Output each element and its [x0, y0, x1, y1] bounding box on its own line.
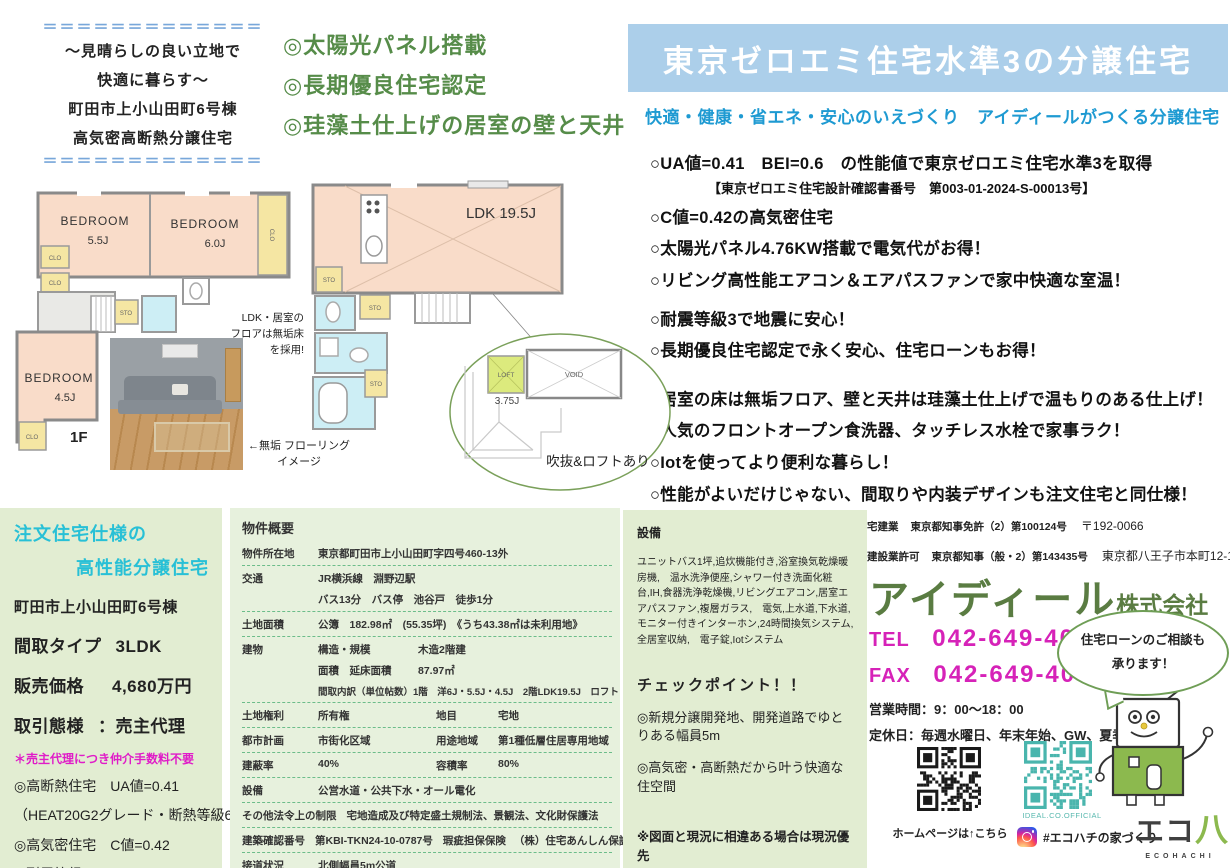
overview-label2: 地目 [436, 708, 498, 723]
ecohachi-logo-en: ECOHACHI [1135, 853, 1225, 860]
plan-note-line: を採用! [224, 343, 304, 359]
overview-label: 建築確認番号 [242, 833, 305, 848]
agency-note: ＊売主代理につき仲介手数料不要 [14, 750, 214, 767]
loft-size: 3.75J [495, 396, 519, 407]
property-overview: 物件概要 物件所在地東京都町田市上小山田町字四号460-13外交通JR横浜線 淵… [230, 508, 620, 868]
bubble-line: 承ります！ [1112, 653, 1175, 677]
catch-block: ＝＝＝＝＝＝＝＝＝＝＝＝＝ ～見晴らしの良い立地で 快適に暮らす～ 町田市上小山… [28, 20, 278, 170]
overview-line: JR横浜線 淵野辺駅 [318, 571, 612, 586]
overview-label2: 瑕疵担保保険 [443, 833, 506, 848]
bedroom2-name: BEDROOM [170, 217, 239, 231]
overview-label2: 用途地域 [436, 733, 498, 748]
overview-value: 所有権 [318, 708, 436, 723]
overview-value: 宅地造成及び特定盛土規制法、景観法、文化財保護法 [347, 808, 603, 823]
license-row-1: 宅建業 東京都知事免許（2）第100124号 〒192-0066 [867, 517, 1144, 534]
checkpoint-item: ◎高気密・高断熱だから叶う快適な住空間 [637, 759, 855, 795]
price-label: 販売価格 [14, 677, 84, 696]
postal-code: 〒192-0066 [1081, 517, 1144, 534]
checkpoint-title: チェックポイント！！ [637, 674, 855, 695]
company-block: 宅建業 東京都知事免許（2）第100124号 〒192-0066 建設業許可 東… [867, 505, 1230, 868]
bedroom3-name: BEDROOM [24, 371, 93, 385]
bedroom2-size: 6.0J [205, 238, 226, 250]
instagram-icon [1017, 827, 1037, 847]
overview-label: 建物 [242, 642, 318, 657]
instagram-dot [1032, 830, 1035, 833]
checkpoint-item: ◎新規分譲開発地、開発道路でゆとりある幅員5m [637, 709, 855, 745]
equipment-body: ユニットバス1坪,追炊機能付き,浴室換気乾燥暖房機, 温水洗浄便座,シャワー付き… [637, 555, 855, 648]
feature-item: ○長期優良住宅認定で永く安心、住宅ローンもお得！ [650, 341, 1230, 362]
plan-note-line: LDK・居室の [224, 311, 304, 327]
spec-list: ◎高断熱住宅 UA値=0.41（HEAT20G2グレード・断熱等級6）◎高気密住… [14, 776, 214, 868]
torihiki-row: 取引態様：売主代理 [14, 712, 214, 737]
catch-line-2: 快適に暮らす～ [28, 66, 278, 95]
fax-label: FAX [869, 665, 911, 687]
highlight-list: ◎太陽光パネル搭載 ◎長期優良住宅認定 ◎珪藻土仕上げの居室の壁と天井 [283, 26, 625, 146]
feature-text: ○リビング高性能エアコン＆エアパスファンで家中快適な室温！ [650, 271, 1230, 292]
overview-row: 設備公営水道・公共下水・オール電化 [242, 778, 612, 803]
overview-value2: 80% [498, 758, 612, 770]
equipment-title: 設備 [637, 524, 855, 541]
overview-lines: 構造・規模木造2階建面積 延床面積87.97㎡間取内訳（単位帖数）1階 洋6J・… [318, 642, 619, 698]
storage-label: STO [369, 306, 382, 312]
catch-line-3: 町田市上小山田町6号棟 [28, 95, 278, 124]
company-name-main: アイディール [869, 578, 1116, 622]
highlight-item: ◎珪藻土仕上げの居室の壁と天井 [283, 106, 625, 146]
overview-value: 市街化区域 [318, 733, 436, 748]
license-row-2: 建設業許可 東京都知事（般・2）第143435号 東京都八王子市本町12-1 [867, 547, 1230, 564]
overview-row: 交通JR横浜線 淵野辺駅バス13分 バス停 池谷戸 徒歩1分 [242, 566, 612, 612]
overview-row: 土地面積公簿 182.98㎡ (55.35坪) 《うち43.38㎡は未利用地》 [242, 612, 612, 637]
homepage-qr-code [917, 747, 981, 811]
storage-label: STO [323, 278, 336, 284]
feature-text: ○性能がよいだけじゃない、間取りや内装デザインも注文住宅と同仕様！ [650, 485, 1230, 506]
overview-value2: 宅地 [498, 708, 612, 723]
license1-label: 宅建業 [867, 519, 899, 534]
ldk-label: LDK 19.5J [466, 205, 536, 222]
instagram-lens [1022, 832, 1032, 842]
overview-label: 土地権利 [242, 708, 318, 723]
feature-item: ○人気のフロントオープン食洗器、タッチレス水栓で家事ラク！ [650, 421, 1230, 442]
overview-label: 交通 [242, 571, 318, 586]
ecohachi-logo: エコ八 ECOHACHI [1135, 803, 1225, 860]
overview-value: 東京都町田市上小山田町字四号460-13外 [318, 546, 612, 561]
equipment-panel: 設備 ユニットバス1坪,追炊機能付き,浴室換気乾燥暖房機, 温水洗浄便座,シャワ… [623, 510, 867, 868]
overview-row: 都市計画市街化区域用途地域 第1種低層住居専用地域 [242, 728, 612, 753]
license1-number: 東京都知事免許（2）第100124号 [911, 519, 1067, 534]
overview-line: 面積 延床面積87.97㎡ [318, 663, 619, 678]
catch-line-1: ～見晴らしの良い立地で [28, 37, 278, 66]
checkpoint-list: ◎新規分譲開発地、開発道路でゆとりある幅員5m◎高気密・高断熱だから叶う快適な住… [637, 709, 855, 796]
overview-value2: 第1種低層住居専用地域 [498, 733, 612, 748]
highlight-item: ◎太陽光パネル搭載 [283, 26, 625, 66]
overview-value: 北側幅員5m公道 [318, 858, 612, 868]
overview-line: 構造・規模木造2階建 [318, 642, 619, 657]
plan-note-line: フロアは無垢床 [224, 327, 304, 343]
overview-row: 建築確認番号第KBI-TKN24-10-0787号瑕疵担保保険 （株）住宅あんし… [242, 828, 612, 853]
photo-caption: ←無垢 フローリング イメージ [247, 439, 351, 471]
catch-line-4: 高気密高断熱分譲住宅 [28, 124, 278, 153]
decoration-equals-top: ＝＝＝＝＝＝＝＝＝＝＝＝＝ [28, 20, 278, 37]
overview-value: 公簿 182.98㎡ (55.35坪) 《うち43.38㎡は未利用地》 [318, 617, 612, 632]
feature-subtext: 【東京ゼロエミ住宅設計確認書番号 第003-01-2024-S-00013号】 [708, 178, 1230, 197]
overview-value: 公営水道・公共下水・オール電化 [318, 783, 612, 798]
feature-item: ○居室の床は無垢フロア、壁と天井は珪藻土仕上げで温もりのある仕上げ！ [650, 390, 1230, 411]
qr1-caption: ホームページは↑こちら [875, 825, 1025, 841]
storage-label: STO [370, 382, 383, 388]
sofa-seat [118, 400, 222, 414]
price-box: 注文住宅仕様の 高性能分譲住宅 町田市上小山田町6号棟 間取タイプ3LDK 販売… [0, 508, 222, 868]
price-box-title1: 注文住宅仕様の [14, 520, 214, 546]
overview-row: 建物構造・規模木造2階建面積 延床面積87.97㎡間取内訳（単位帖数）1階 洋6… [242, 637, 612, 703]
overview-label: 建蔽率 [242, 758, 318, 773]
overview-label: その他法令上の制限 [242, 808, 337, 823]
feature-item: ○太陽光パネル4.76KW搭載で電気代がお得！ [650, 239, 1230, 260]
price-value: 4,680万円 [112, 677, 192, 696]
overview-table: 物件所在地東京都町田市上小山田町字四号460-13外交通JR横浜線 淵野辺駅バス… [242, 541, 612, 868]
feature-item: ○Iotを使ってより便利な暮らし！ [650, 453, 1230, 474]
logo-hachi: 八 [1195, 811, 1228, 848]
loft-callout-text: 吹抜&ロフトあり [546, 454, 650, 469]
feature-text: ○Iotを使ってより便利な暮らし！ [650, 453, 1230, 474]
overview-lines: JR横浜線 淵野辺駅バス13分 バス停 池谷戸 徒歩1分 [318, 571, 612, 607]
feature-list: ○UA値=0.41 BEI=0.6 の性能値で東京ゼロエミ住宅水準3を取得 【東… [650, 143, 1230, 505]
drawing-note: ※図面と現況に相違ある場合は現況優先 [637, 826, 855, 864]
price-row: 販売価格4,680万円 [14, 672, 214, 697]
madori-value: 3LDK [116, 637, 162, 656]
overview-label2: 容積率 [436, 758, 498, 773]
plan-note: LDK・居室の フロアは無垢床 を採用! [224, 311, 304, 358]
overview-row: 土地権利所有権地目 宅地 [242, 703, 612, 728]
bedroom1-name: BEDROOM [60, 214, 129, 228]
decoration-equals-bottom: ＝＝＝＝＝＝＝＝＝＝＝＝＝ [28, 154, 278, 171]
feature-text: ○太陽光パネル4.76KW搭載で電気代がお得！ [650, 239, 1230, 260]
wall-art [162, 344, 198, 358]
coffee-table [154, 422, 230, 452]
bubble-line: 住宅ローンのご相談も [1081, 629, 1205, 653]
loft-label: LOFT [498, 372, 515, 379]
overview-row: その他法令上の制限宅地造成及び特定盛土規制法、景観法、文化財保護法 [242, 803, 612, 828]
qr2-caption: IDEAL.CO.OFFICIAL [1017, 811, 1107, 820]
feature-text: ○居室の床は無垢フロア、壁と天井は珪藻土仕上げで温もりのある仕上げ！ [650, 390, 1230, 411]
overview-value: 40% [318, 758, 436, 770]
feature-text: ○長期優良住宅認定で永く安心、住宅ローンもお得！ [650, 341, 1230, 362]
torihiki-value: ：売主代理 [98, 717, 186, 736]
spec-item: （HEAT20G2グレード・断熱等級6） [14, 805, 214, 825]
feature-text: ○人気のフロントオープン食洗器、タッチレス水栓で家事ラク！ [650, 421, 1230, 442]
overview-value2: （株）住宅あんしん保証 [514, 833, 630, 848]
feature-item: ○耐震等級3で地震に安心！ [650, 310, 1230, 331]
overview-value: 第KBI-TKN24-10-0787号 [315, 833, 433, 848]
feature-item: ○リビング高性能エアコン＆エアパスファンで家中快適な室温！ [650, 271, 1230, 292]
overview-row: 物件所在地東京都町田市上小山田町字四号460-13外 [242, 541, 612, 566]
building-name: 町田市上小山田町6号棟 [14, 596, 214, 617]
pillow [172, 384, 188, 395]
feature-text: ○C値=0.42の高気密住宅 [650, 208, 1230, 229]
closet-label: CLO [49, 281, 62, 287]
business-hours: 営業時間：9：00～18：00 [869, 699, 1024, 718]
price-box-title2: 高性能分譲住宅 [76, 554, 214, 580]
overview-title: 物件概要 [242, 518, 612, 537]
highlight-item: ◎長期優良住宅認定 [283, 66, 625, 106]
overview-line: バス13分 バス停 池谷戸 徒歩1分 [318, 592, 612, 607]
bedroom3-size: 4.5J [55, 392, 76, 404]
closet-label: CLO [268, 229, 274, 242]
banner-title: 東京ゼロエミ住宅水準3の分譲住宅 [663, 36, 1193, 81]
license2-number: 東京都知事（般・2）第143435号 [932, 549, 1088, 564]
subtitle: 快適・健康・省エネ・安心のいえづくり アイディールがつくる分譲住宅 [645, 103, 1220, 128]
instagram-qr-code [1024, 741, 1092, 809]
bedroom1-size: 5.5J [88, 235, 109, 247]
feature-item: ○UA値=0.41 BEI=0.6 の性能値で東京ゼロエミ住宅水準3を取得 【東… [650, 154, 1230, 197]
photo-caption-line: ←無垢 フローリング [247, 439, 351, 455]
closet-label: CLO [49, 256, 62, 262]
spec-item: ◎高気密住宅 C値=0.42 [14, 835, 214, 855]
speech-bubble: 住宅ローンのご相談も 承ります！ [1057, 610, 1229, 696]
floorplan-2f: LDK 19.5J STO STO STO [303, 170, 683, 508]
feature-text: ○UA値=0.41 BEI=0.6 の性能値で東京ゼロエミ住宅水準3を取得 [650, 154, 1230, 175]
storage-label: STO [120, 311, 133, 317]
ldk-room [313, 185, 562, 293]
torihiki-label: 取引態様 [14, 717, 84, 736]
bathroom-1f [142, 296, 176, 332]
overview-row: 建蔽率40%容積率 80% [242, 753, 612, 778]
spec-item: ◎高断熱住宅 UA値=0.41 [14, 776, 214, 796]
photo-caption-line: イメージ [247, 455, 351, 471]
overview-label: 設備 [242, 783, 318, 798]
void-label: VOID [565, 370, 584, 379]
feature-item: ○性能がよいだけじゃない、間取りや内装デザインも注文住宅と同仕様！ [650, 485, 1230, 506]
overview-row: 接道状況北側幅員5m公道 [242, 853, 612, 868]
closet-label: CLO [26, 435, 39, 441]
overview-line: 間取内訳（単位帖数）1階 洋6J・5.5J・4.5J 2階LDK19.5J ロフ… [318, 684, 619, 698]
flyer-page: ＝＝＝＝＝＝＝＝＝＝＝＝＝ ～見晴らしの良い立地で 快適に暮らす～ 町田市上小山… [0, 0, 1230, 868]
logo-eco: エコ [1135, 816, 1195, 848]
overview-label: 接道状況 [242, 858, 318, 868]
feature-text: ○耐震等級3で地震に安心！ [650, 310, 1230, 331]
overview-label: 物件所在地 [242, 546, 318, 561]
floor1-label: 1F [70, 429, 88, 446]
company-address: 東京都八王子市本町12-1 [1102, 547, 1230, 564]
license2-label: 建設業許可 [867, 549, 920, 564]
madori-row: 間取タイプ3LDK [14, 632, 214, 657]
spec-item: ◎耐震等級3 [14, 864, 214, 868]
overview-label: 都市計画 [242, 733, 318, 748]
title-banner: 東京ゼロエミ住宅水準3の分譲住宅 [628, 24, 1228, 92]
tel-label: TEL [869, 629, 910, 651]
madori-label: 間取タイプ [14, 637, 102, 656]
feature-item: ○C値=0.42の高気密住宅 [650, 208, 1230, 229]
overview-label: 土地面積 [242, 617, 318, 632]
ecohachi-logo-jp: エコ八 [1135, 803, 1225, 851]
